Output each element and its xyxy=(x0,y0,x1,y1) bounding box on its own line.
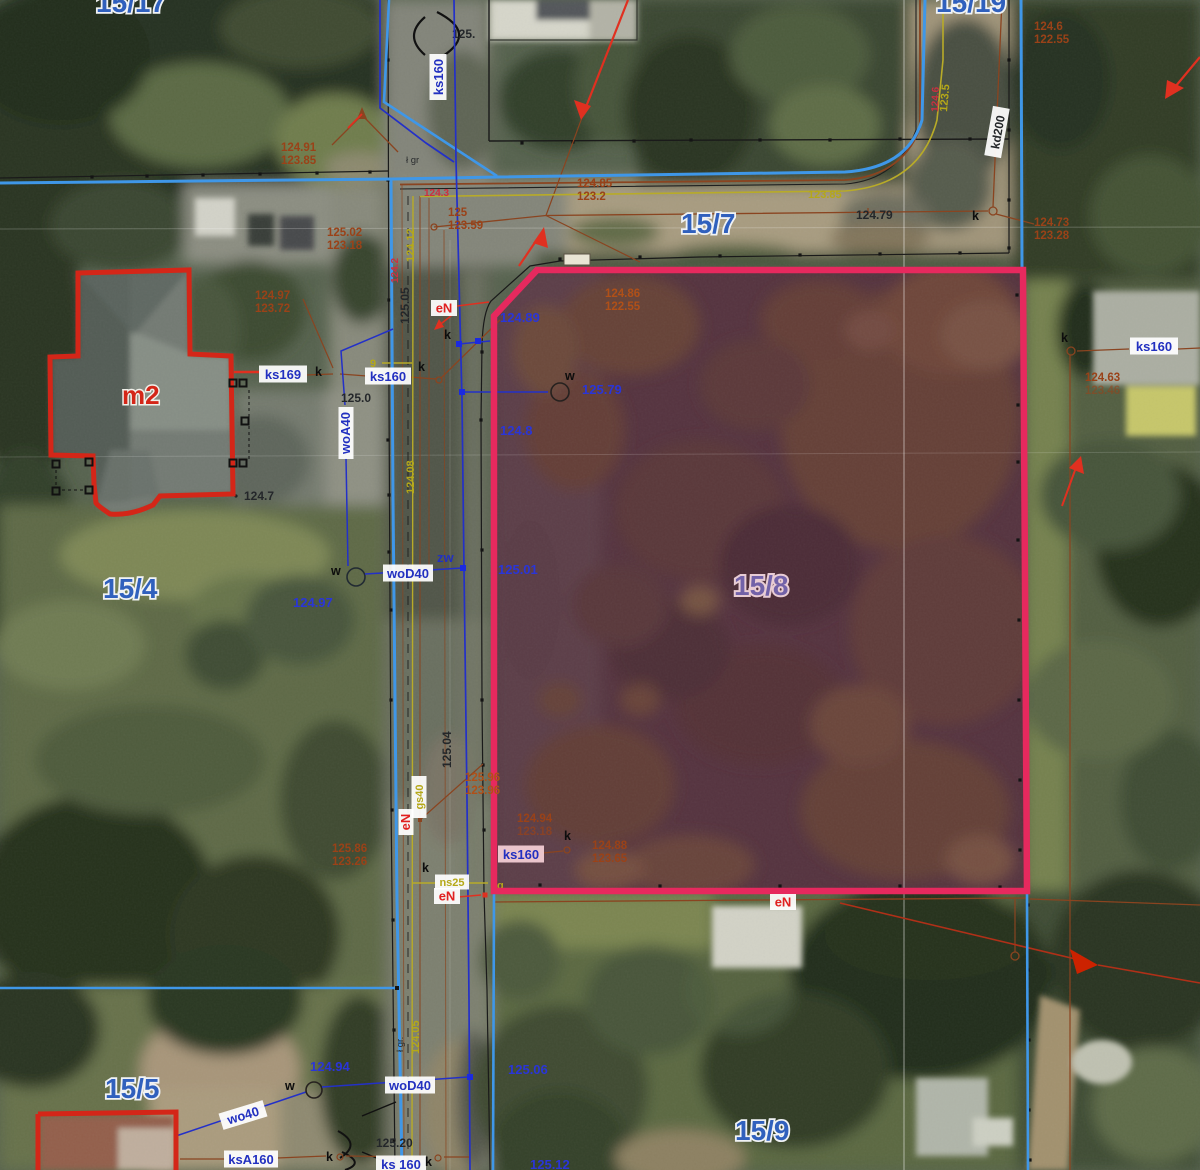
svg-text:124.89: 124.89 xyxy=(500,310,540,325)
svg-text:124.6: 124.6 xyxy=(930,86,942,112)
svg-text:125.96: 125.96 xyxy=(465,772,500,784)
svg-text:k: k xyxy=(326,1150,333,1164)
svg-text:15/8: 15/8 xyxy=(734,570,789,601)
svg-text:124.6: 124.6 xyxy=(1034,21,1063,33)
svg-text:w: w xyxy=(330,564,341,578)
svg-text:125.86: 125.86 xyxy=(332,843,367,855)
svg-text:ks160: ks160 xyxy=(370,369,406,384)
svg-text:123.59: 123.59 xyxy=(448,220,483,232)
svg-text:ksA160: ksA160 xyxy=(228,1152,274,1167)
svg-text:zw: zw xyxy=(437,550,455,565)
svg-text:123.28: 123.28 xyxy=(1034,230,1070,242)
svg-text:gs40: gs40 xyxy=(414,784,426,809)
svg-text:15/5: 15/5 xyxy=(105,1073,160,1104)
svg-text:124.91: 124.91 xyxy=(281,142,317,154)
svg-text:123.18: 123.18 xyxy=(327,240,363,252)
svg-text:125.12: 125.12 xyxy=(530,1157,570,1170)
svg-text:123.72: 123.72 xyxy=(255,303,290,315)
svg-text:k: k xyxy=(422,861,429,875)
svg-text:15/17: 15/17 xyxy=(96,0,166,18)
svg-text:124.73: 124.73 xyxy=(1034,217,1069,229)
svg-text:122.55: 122.55 xyxy=(1034,34,1070,46)
svg-text:k: k xyxy=(315,365,322,379)
svg-text:124.7: 124.7 xyxy=(244,489,274,503)
svg-text:124.86: 124.86 xyxy=(605,288,640,300)
svg-text:125.: 125. xyxy=(452,27,475,41)
svg-text:ł gr.: ł gr. xyxy=(395,1037,406,1052)
svg-text:eN: eN xyxy=(398,814,413,831)
svg-text:123.2: 123.2 xyxy=(577,191,606,203)
svg-text:15/19: 15/19 xyxy=(936,0,1006,18)
svg-text:124.97: 124.97 xyxy=(293,595,333,610)
svg-text:ks160: ks160 xyxy=(503,847,539,862)
svg-text:woA40: woA40 xyxy=(338,412,353,455)
svg-text:124.3: 124.3 xyxy=(424,188,449,199)
svg-text:123.46: 123.46 xyxy=(1085,385,1120,397)
svg-text:123.18: 123.18 xyxy=(517,826,553,838)
svg-text:ks160: ks160 xyxy=(1136,339,1172,354)
svg-text:k: k xyxy=(1061,331,1068,345)
svg-text:ns25: ns25 xyxy=(439,877,464,889)
svg-text:124.97: 124.97 xyxy=(255,290,290,302)
svg-text:m2: m2 xyxy=(122,380,160,410)
svg-text:124.12: 124.12 xyxy=(405,228,417,262)
svg-text:ks 160: ks 160 xyxy=(381,1157,421,1170)
svg-text:123.85: 123.85 xyxy=(808,189,842,201)
svg-text:123.65: 123.65 xyxy=(592,853,628,865)
svg-text:ks160: ks160 xyxy=(431,59,446,95)
svg-text:ł gr: ł gr xyxy=(406,155,419,166)
svg-text:k: k xyxy=(418,360,425,374)
svg-text:122.55: 122.55 xyxy=(605,301,641,313)
svg-text:w: w xyxy=(564,369,575,383)
svg-text:124.94: 124.94 xyxy=(310,1059,351,1074)
svg-text:123.96: 123.96 xyxy=(465,785,500,797)
svg-text:125.02: 125.02 xyxy=(327,227,362,239)
svg-text:k: k xyxy=(444,328,451,342)
svg-text:woD40: woD40 xyxy=(388,1078,431,1093)
svg-text:124.85: 124.85 xyxy=(577,178,613,190)
svg-text:125.01: 125.01 xyxy=(498,562,538,577)
svg-text:125.20: 125.20 xyxy=(376,1136,413,1150)
svg-text:125.04: 125.04 xyxy=(440,731,454,768)
svg-text:woD40: woD40 xyxy=(386,566,429,581)
svg-text:k: k xyxy=(564,829,571,843)
svg-text:124.88: 124.88 xyxy=(592,840,628,852)
svg-text:eN: eN xyxy=(439,889,456,904)
svg-text:125.05: 125.05 xyxy=(398,287,412,324)
svg-text:124.94: 124.94 xyxy=(517,813,553,825)
svg-text:124.08: 124.08 xyxy=(405,460,417,494)
svg-text:125.06: 125.06 xyxy=(508,1062,548,1077)
svg-text:15/4: 15/4 xyxy=(103,573,158,604)
svg-text:k: k xyxy=(425,1155,432,1169)
svg-text:eN: eN xyxy=(436,301,453,316)
svg-text:w: w xyxy=(284,1079,295,1093)
svg-text:ks169: ks169 xyxy=(265,367,301,382)
svg-text:124.8: 124.8 xyxy=(500,423,533,438)
svg-text:15/9: 15/9 xyxy=(735,1115,790,1146)
svg-text:124.2: 124.2 xyxy=(390,258,401,283)
svg-text:k: k xyxy=(972,209,979,223)
svg-text:eN: eN xyxy=(775,895,792,910)
svg-text:125.79: 125.79 xyxy=(582,382,622,397)
svg-text:125: 125 xyxy=(448,207,468,219)
svg-text:15/7: 15/7 xyxy=(681,208,736,239)
svg-text:124.05: 124.05 xyxy=(410,1020,422,1054)
svg-text:123.85: 123.85 xyxy=(281,155,317,167)
svg-text:124.63: 124.63 xyxy=(1085,372,1120,384)
svg-text:123.26: 123.26 xyxy=(332,856,367,868)
svg-text:124.79: 124.79 xyxy=(856,208,893,222)
svg-text:125.0: 125.0 xyxy=(341,391,371,405)
